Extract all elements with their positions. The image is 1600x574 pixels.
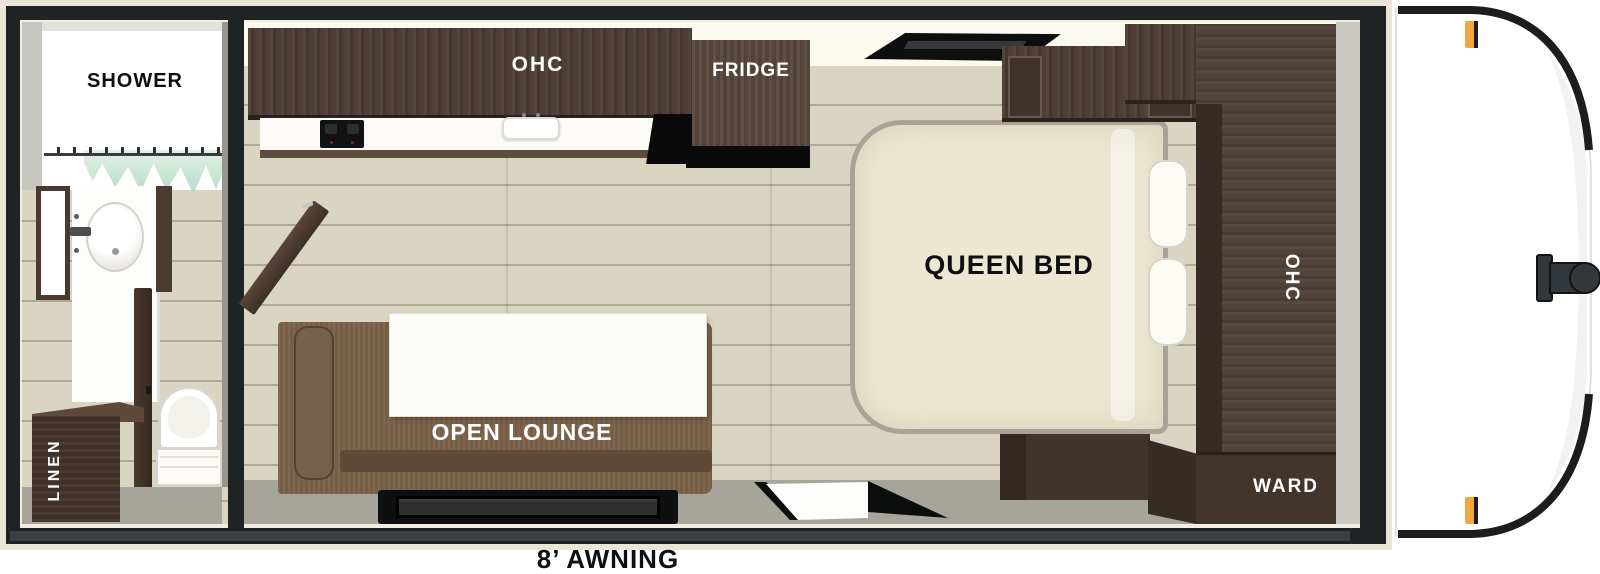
front-cap (1394, 0, 1600, 574)
toilet-seat (168, 396, 210, 438)
kitchen-sink (502, 117, 560, 140)
bathroom-mirror (36, 186, 70, 300)
kitchen-ohc-label: OHC (478, 54, 598, 76)
divider-wall (228, 6, 244, 528)
marker-light-bottom-edge (1474, 497, 1478, 524)
linen-label: LINEN (47, 425, 67, 515)
kitchen-faucet (522, 113, 526, 117)
entry-step-tread (396, 496, 660, 518)
front-wall-face (1336, 22, 1360, 524)
toilet-tank-line (160, 466, 218, 468)
vanity-cabinet-side (156, 186, 172, 292)
door-handle (146, 386, 151, 394)
burner (347, 124, 359, 134)
cabinet-door (1008, 56, 1042, 118)
fridge-label: FRIDGE (694, 61, 808, 81)
faucet-knob (74, 248, 79, 253)
awning-label: 8’ AWNING (448, 546, 768, 573)
entry-door-open (740, 474, 960, 526)
burner (325, 124, 337, 134)
fridge (692, 40, 810, 146)
wardrobe-rear-label: WARD (1236, 477, 1336, 497)
burner-knob (351, 141, 354, 144)
shower-wall-shade-top (42, 22, 228, 31)
bedroom-ohc-label: OHC (1277, 223, 1301, 333)
cooktop (320, 120, 364, 148)
shower-wall-shade (22, 22, 42, 190)
toilet-tank-line (160, 456, 218, 458)
kitchen-overhead-cabinet (248, 28, 692, 120)
lounge-label: OPEN LOUNGE (402, 420, 642, 444)
shower-label: SHOWER (42, 71, 228, 92)
bed-foot-cabinet-side (1000, 434, 1026, 500)
queen-bed-label: QUEEN BED (855, 251, 1163, 279)
shower-curtain-rod (44, 153, 224, 156)
faucet-knob (74, 214, 79, 219)
kitchen-counter-edge (260, 150, 692, 158)
floorplan-image: SHOWER LINEN OHC FRIDGE (0, 0, 1600, 574)
sink-drain (112, 248, 119, 255)
wardrobe-side-panel (1148, 440, 1196, 524)
cabinet-side-panel (1196, 104, 1222, 452)
kitchen-faucet (536, 113, 540, 117)
pillow (1150, 162, 1186, 246)
queen-bed: QUEEN BED (850, 120, 1168, 434)
sofa-seat-cushion (340, 450, 712, 472)
awning-roll-bar (10, 531, 1350, 541)
burner-knob (330, 141, 333, 144)
sink-faucet (70, 227, 91, 236)
pillow (1150, 260, 1186, 344)
marker-light-top-edge (1474, 21, 1478, 48)
lounge-table (390, 314, 706, 416)
bathroom-sink (86, 202, 144, 272)
sofa-armrest (294, 326, 334, 480)
